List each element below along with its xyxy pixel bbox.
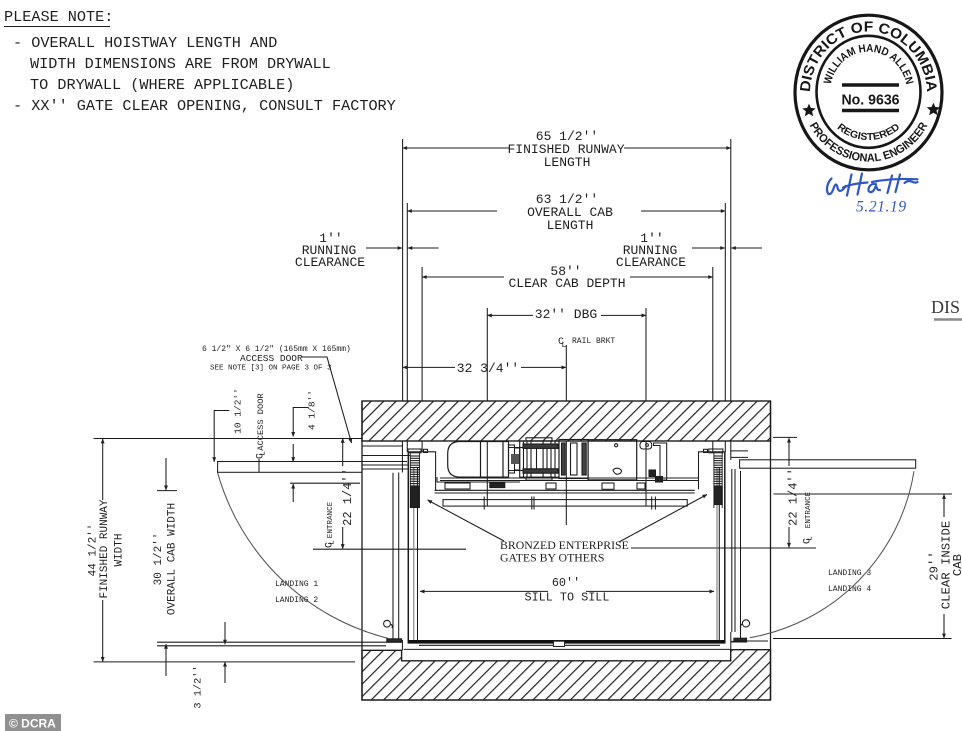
svg-text:No. 9636: No. 9636: [842, 92, 900, 109]
svg-text:DISTRICT OF COLUMBIA: DISTRICT OF COLUMBIA: [798, 20, 939, 94]
svg-text:DIS: DIS: [931, 297, 960, 317]
svg-text:ENTRANCE: ENTRANCE: [805, 491, 813, 528]
svg-text:REGISTERED: REGISTERED: [835, 122, 902, 143]
svg-text:WIDTH DIMENSIONS ARE FROM DRYW: WIDTH DIMENSIONS ARE FROM DRYWALL: [30, 55, 331, 73]
svg-text:CLEARANCE: CLEARANCE: [616, 255, 686, 270]
svg-text:- XX'' GATE CLEAR OPENING, CON: - XX'' GATE CLEAR OPENING, CONSULT FACTO…: [13, 97, 396, 115]
svg-text:CAB: CAB: [951, 554, 962, 576]
svg-text:RAIL BRKT: RAIL BRKT: [572, 337, 615, 346]
svg-text:LANDING 1: LANDING 1: [275, 580, 318, 589]
svg-text:TO DRYWALL (WHERE APPLICABLE): TO DRYWALL (WHERE APPLICABLE): [30, 76, 294, 94]
svg-text:ENTRANCE: ENTRANCE: [327, 501, 335, 538]
svg-text:32'' DBG: 32'' DBG: [535, 307, 597, 322]
svg-text:WIDTH: WIDTH: [114, 533, 126, 566]
svg-text:44 1/2'': 44 1/2'': [88, 524, 100, 577]
svg-text:5.21.19: 5.21.19: [856, 199, 907, 216]
svg-text:L: L: [562, 341, 567, 350]
svg-text:4 1/8'': 4 1/8'': [307, 390, 318, 430]
svg-text:60'': 60'': [552, 576, 580, 590]
svg-text:30 1/2'': 30 1/2'': [153, 533, 165, 586]
svg-text:10 1/2'': 10 1/2'': [233, 388, 244, 434]
svg-text:- OVERALL HOISTWAY LENGTH AND: - OVERALL HOISTWAY LENGTH AND: [13, 34, 277, 52]
svg-text:22 1/4'': 22 1/4'': [787, 468, 801, 526]
svg-text:3 1/2'': 3 1/2'': [193, 665, 205, 708]
svg-text:OVERALL CAB WIDTH: OVERALL CAB WIDTH: [167, 503, 179, 615]
svg-text:FINISHED RUNWAY: FINISHED RUNWAY: [99, 499, 111, 598]
svg-text:CLEAR CAB DEPTH: CLEAR CAB DEPTH: [508, 276, 625, 291]
svg-text:LENGTH: LENGTH: [544, 155, 591, 170]
svg-text:ACCESS DOOR: ACCESS DOOR: [240, 353, 303, 364]
svg-text:L: L: [328, 540, 337, 545]
svg-text:SILL TO SILL: SILL TO SILL: [525, 591, 610, 605]
svg-text:CLEARANCE: CLEARANCE: [295, 255, 365, 270]
svg-text:SEE NOTE [3] ON PAGE 3 OF 3: SEE NOTE [3] ON PAGE 3 OF 3: [210, 365, 332, 373]
svg-text:PLEASE NOTE:: PLEASE NOTE:: [4, 8, 113, 26]
svg-text:L: L: [259, 451, 268, 456]
svg-text:ACCESS DOOR: ACCESS DOOR: [256, 393, 266, 450]
svg-text:22 1/4'': 22 1/4'': [341, 468, 355, 526]
svg-text:© DCRA: © DCRA: [9, 717, 56, 731]
svg-text:32 3/4'': 32 3/4'': [457, 361, 519, 376]
svg-text:L: L: [806, 536, 815, 541]
svg-text:LENGTH: LENGTH: [547, 218, 594, 233]
svg-text:GATES BY OTHERS: GATES BY OTHERS: [500, 551, 604, 565]
